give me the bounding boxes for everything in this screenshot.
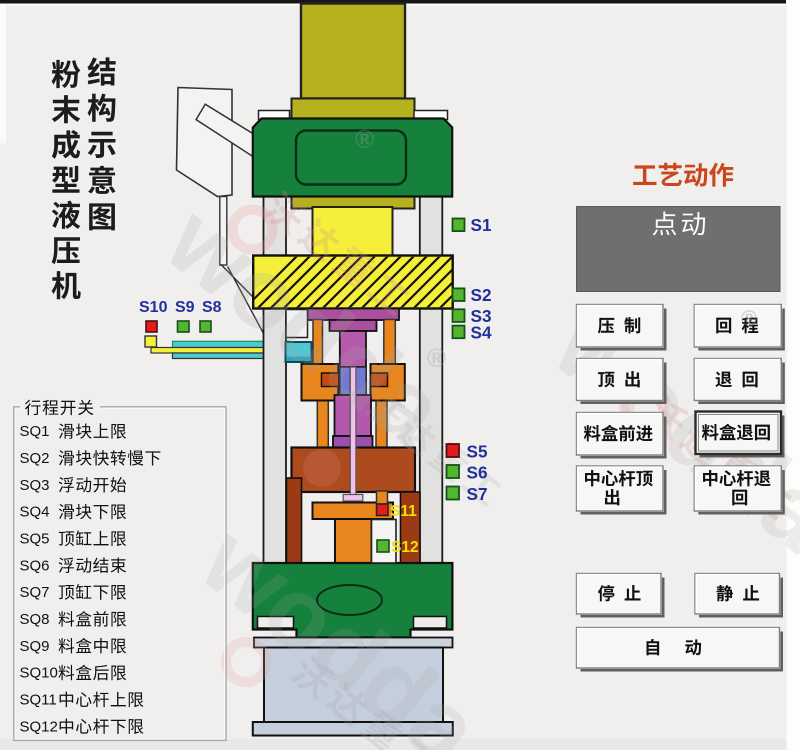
svg-text:S2: S2 xyxy=(471,285,492,305)
svg-text:SQ2: SQ2 xyxy=(20,450,50,467)
svg-text:S5: S5 xyxy=(467,442,488,462)
svg-text:S9: S9 xyxy=(175,299,195,316)
svg-text:SQ9: SQ9 xyxy=(20,638,50,655)
svg-text:SQ11: SQ11 xyxy=(20,692,57,709)
svg-text:SQ1: SQ1 xyxy=(20,423,50,440)
svg-text:SQ4: SQ4 xyxy=(20,504,50,521)
svg-text:SQ12: SQ12 xyxy=(20,718,58,735)
svg-text:S12: S12 xyxy=(391,539,419,556)
svg-text:S6: S6 xyxy=(467,463,488,483)
svg-text:SQ7: SQ7 xyxy=(20,584,50,601)
svg-text:SQ5: SQ5 xyxy=(20,531,50,548)
svg-text:S10: S10 xyxy=(139,299,168,316)
svg-text:SQ3: SQ3 xyxy=(20,477,50,494)
svg-text:SQ10: SQ10 xyxy=(20,665,58,682)
svg-text:S4: S4 xyxy=(471,323,492,343)
svg-text:S11: S11 xyxy=(390,503,417,520)
svg-text:SQ8: SQ8 xyxy=(20,611,50,628)
svg-text:®: ® xyxy=(741,306,757,331)
svg-text:S8: S8 xyxy=(202,299,222,316)
svg-text:S1: S1 xyxy=(471,215,492,235)
svg-text:S7: S7 xyxy=(467,484,488,504)
svg-text:SQ6: SQ6 xyxy=(20,557,50,574)
